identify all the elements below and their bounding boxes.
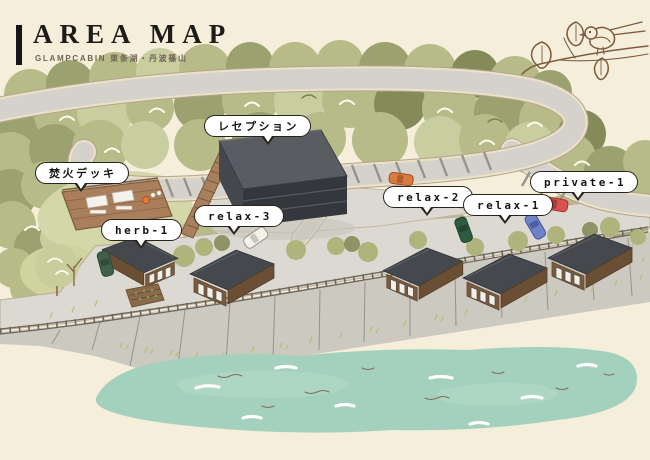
header: AREA MAP GLAMPCABIN 東条湖・丹波篠山 [16,20,232,64]
label-herb-1: herb-1 [101,219,182,241]
title-accent-bar [16,25,22,65]
label-reception: レセプション [204,115,311,137]
label-text: relax-3 [208,210,272,223]
page-title: AREA MAP [33,20,232,50]
label-text: relax-2 [397,191,461,204]
bonfire-icon [143,197,150,204]
pond [96,347,637,433]
map-illustration [0,0,650,460]
label-private-1: private-1 [530,171,638,193]
label-text: relax-1 [477,199,541,212]
label-relax-2: relax-2 [383,186,473,208]
bird-eye [589,31,591,33]
label-text: 焚火デッキ [49,167,117,180]
label-text: herb-1 [115,224,170,237]
page-subtitle: GLAMPCABIN 東条湖・丹波篠山 [35,53,232,64]
label-relax-1: relax-1 [463,194,553,216]
label-bonfire-deck: 焚火デッキ [35,162,129,184]
label-text: レセプション [218,120,299,133]
label-text: private-1 [544,176,626,189]
area-map-poster: AREA MAP GLAMPCABIN 東条湖・丹波篠山 焚火デッキ レセプショ… [0,0,650,460]
label-relax-3: relax-3 [194,205,284,227]
